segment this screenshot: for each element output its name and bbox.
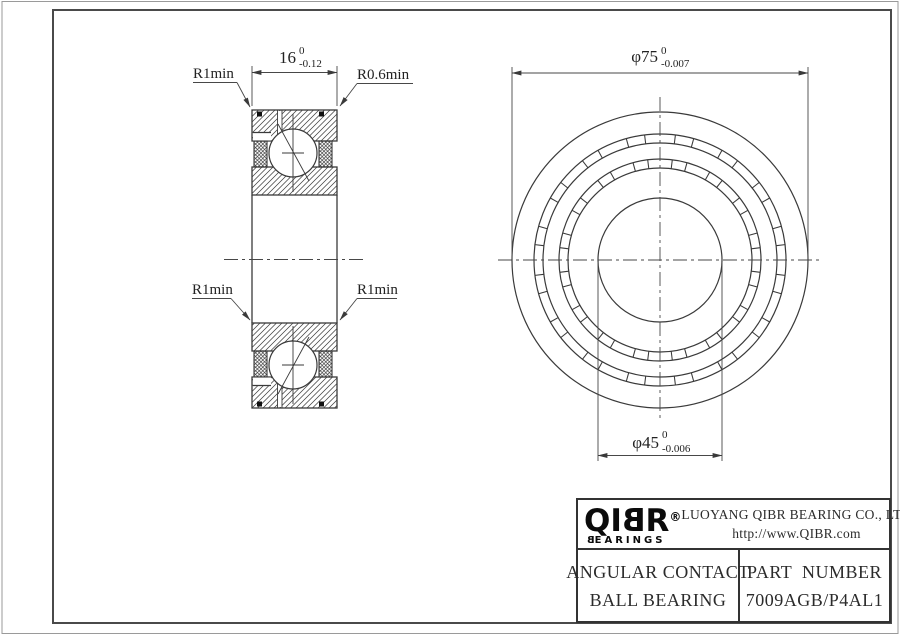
cage-pocket-divider — [671, 160, 672, 169]
od-dim-value: φ75 — [631, 47, 658, 66]
title-block-header-row: QIBR® BEARINGS LUOYANG QIBR BEARING CO.,… — [578, 500, 889, 550]
bore-dim-tol-upper: 0 — [662, 429, 668, 441]
width-dim-tol-lower: -0.12 — [299, 58, 322, 70]
cage-pocket-divider — [762, 318, 770, 322]
cage-pocket-divider — [674, 135, 675, 144]
width-dim-value: 16 — [279, 48, 296, 67]
cage-pocket-divider — [572, 305, 580, 309]
r1min-top-left-label: R1min — [193, 66, 234, 82]
part-number-label: PART NUMBER — [747, 562, 882, 583]
registered-mark: ® — [669, 510, 681, 524]
section-top — [252, 110, 337, 195]
cage-pocket-divider — [751, 248, 760, 249]
cage-pocket-divider — [752, 182, 759, 188]
cage-pocket-divider — [598, 362, 602, 370]
section-bottom — [252, 323, 337, 408]
bore-dim-value: φ45 — [632, 433, 659, 452]
section-view: 16 0 -0.12 R1min R0.6min R1min R1min — [192, 45, 413, 408]
cage-right-top — [319, 141, 332, 167]
part-number-cell: PART NUMBER 7009AGB/P4AL1 — [740, 550, 889, 623]
cage-pocket-divider — [705, 172, 709, 180]
cage-pocket-divider — [691, 373, 693, 382]
cage-pocket-divider — [563, 285, 572, 287]
cage-pocket-divider — [732, 161, 738, 168]
cage-pocket-divider — [776, 245, 785, 246]
cage-pocket-divider — [626, 373, 628, 382]
cage-pocket-divider — [717, 333, 723, 340]
cage-pocket-divider — [560, 271, 569, 272]
cage-pocket-divider — [733, 317, 740, 323]
product-line1: ANGULAR CONTACT — [566, 562, 750, 583]
cage-pocket-divider — [610, 340, 614, 348]
qibr-logo: QIBR® — [584, 503, 681, 535]
seal-dot — [319, 112, 324, 117]
title-block: QIBR® BEARINGS LUOYANG QIBR BEARING CO.,… — [576, 498, 891, 623]
company-info: LUOYANG QIBR BEARING CO., LTD http://www… — [681, 500, 900, 548]
cage-pocket-divider — [718, 362, 722, 370]
r06min-top-right-label: R0.6min — [357, 67, 410, 83]
company-name: LUOYANG QIBR BEARING CO., LTD — [681, 507, 900, 523]
cage-pocket-divider — [648, 351, 649, 360]
cage-pocket-divider — [717, 180, 723, 187]
cage-pocket-divider — [645, 376, 646, 385]
cage-pocket-divider — [749, 233, 758, 235]
cage-pocket-divider — [563, 233, 572, 235]
cage-pocket-divider — [598, 333, 604, 340]
seal-dot — [257, 402, 262, 407]
cage-left-top — [254, 141, 267, 167]
seal-dot — [257, 112, 262, 117]
cage-pocket-divider — [691, 139, 693, 148]
title-block-bottom-row: ANGULAR CONTACT BALL BEARING PART NUMBER… — [578, 550, 889, 623]
cage-pocket-divider — [580, 317, 587, 323]
bore-dim-tol-lower: -0.006 — [662, 443, 691, 455]
r1min-mid-right-label: R1min — [357, 282, 398, 298]
width-dimension: 16 0 -0.12 — [252, 45, 337, 106]
seal-dot — [319, 402, 324, 407]
cage-pocket-divider — [648, 160, 649, 169]
cage-pocket-divider — [582, 352, 588, 359]
drawing-sheet: 16 0 -0.12 R1min R0.6min R1min R1min — [0, 0, 900, 636]
cage-pocket-divider — [539, 291, 548, 293]
cage-pocket-divider — [732, 352, 738, 359]
company-website: http://www.QIBR.com — [732, 526, 861, 542]
cage-pocket-divider — [776, 274, 785, 275]
cage-pocket-divider — [550, 198, 558, 202]
cage-pocket-divider — [580, 198, 587, 204]
cage-right-bottom — [319, 351, 332, 377]
cage-pocket-divider — [751, 271, 760, 272]
product-line2: BALL BEARING — [590, 590, 727, 611]
cage-pocket-divider — [740, 305, 748, 309]
cage-pocket-divider — [561, 332, 568, 338]
cage-pocket-divider — [705, 340, 709, 348]
product-type-cell: ANGULAR CONTACT BALL BEARING — [578, 550, 740, 623]
company-logo: QIBR® BEARINGS — [578, 500, 681, 548]
cage-left-bottom — [254, 351, 267, 377]
od-dim-tol-lower: -0.007 — [661, 58, 690, 70]
front-view: φ75 0 -0.007 φ45 0 -0.006 — [498, 45, 822, 461]
cage-pocket-divider — [674, 376, 675, 385]
cage-pocket-divider — [773, 226, 782, 228]
cage-pocket-divider — [733, 198, 740, 204]
part-number-value: 7009AGB/P4AL1 — [746, 590, 884, 611]
cage-pocket-divider — [740, 210, 748, 214]
cage-pocket-divider — [610, 172, 614, 180]
cage-pocket-divider — [535, 274, 544, 275]
cage-pocket-divider — [539, 226, 548, 228]
cage-pocket-divider — [685, 349, 687, 358]
cage-pocket-divider — [626, 139, 628, 148]
width-dim-tol-upper: 0 — [299, 45, 305, 57]
cage-pocket-divider — [633, 163, 635, 172]
cage-pocket-divider — [561, 182, 568, 188]
cage-pocket-divider — [598, 180, 604, 187]
cage-pocket-divider — [560, 248, 569, 249]
cage-pocket-divider — [598, 150, 602, 158]
r1min-mid-left-label: R1min — [192, 282, 233, 298]
cage-pocket-divider — [773, 291, 782, 293]
cage-pocket-divider — [685, 163, 687, 172]
od-dim-tol-upper: 0 — [661, 45, 667, 57]
cage-pocket-divider — [633, 349, 635, 358]
cage-pocket-divider — [752, 332, 759, 338]
cage-pocket-divider — [550, 318, 558, 322]
cage-pocket-divider — [749, 285, 758, 287]
cage-pocket-divider — [535, 245, 544, 246]
cage-pocket-divider — [645, 135, 646, 144]
cage-pocket-divider — [582, 161, 588, 168]
cage-pocket-divider — [572, 210, 580, 214]
cage-pocket-divider — [762, 198, 770, 202]
cage-pocket-divider — [671, 351, 672, 360]
cage-pocket-divider — [718, 150, 722, 158]
